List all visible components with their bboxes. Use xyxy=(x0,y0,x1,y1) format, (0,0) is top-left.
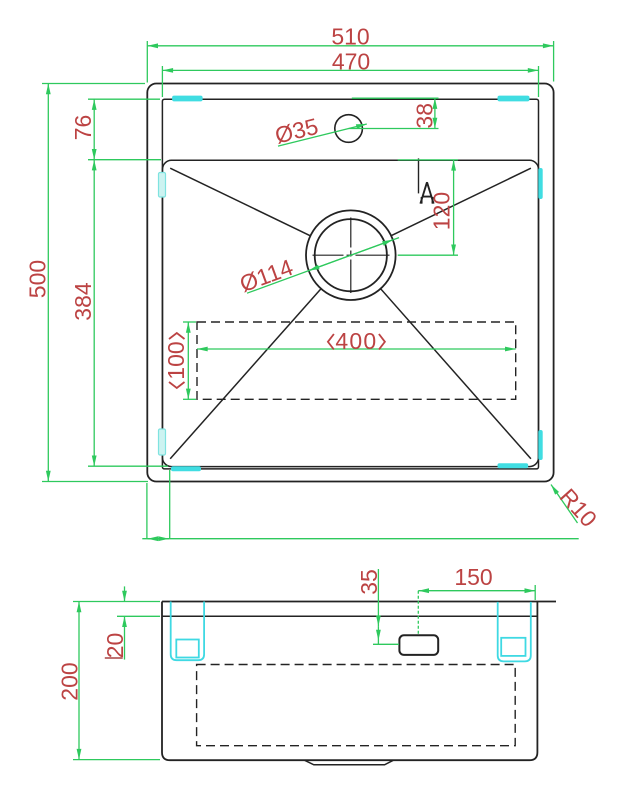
svg-text:20: 20 xyxy=(102,633,128,659)
svg-text:200: 200 xyxy=(57,662,83,700)
svg-text:510: 510 xyxy=(331,24,369,50)
svg-text:Ø35: Ø35 xyxy=(272,113,320,149)
svg-text:470: 470 xyxy=(332,49,370,75)
svg-text:150: 150 xyxy=(454,564,492,590)
svg-text:Ø114: Ø114 xyxy=(236,254,296,297)
svg-text:38: 38 xyxy=(412,103,438,129)
svg-text:120: 120 xyxy=(429,192,455,230)
svg-text:500: 500 xyxy=(25,260,51,298)
svg-text:R10: R10 xyxy=(555,483,603,532)
svg-text:76: 76 xyxy=(70,115,96,141)
svg-text:100: 100 xyxy=(163,341,189,379)
svg-text:35: 35 xyxy=(356,569,382,595)
svg-text:400: 400 xyxy=(335,328,377,354)
svg-text:384: 384 xyxy=(70,282,96,321)
